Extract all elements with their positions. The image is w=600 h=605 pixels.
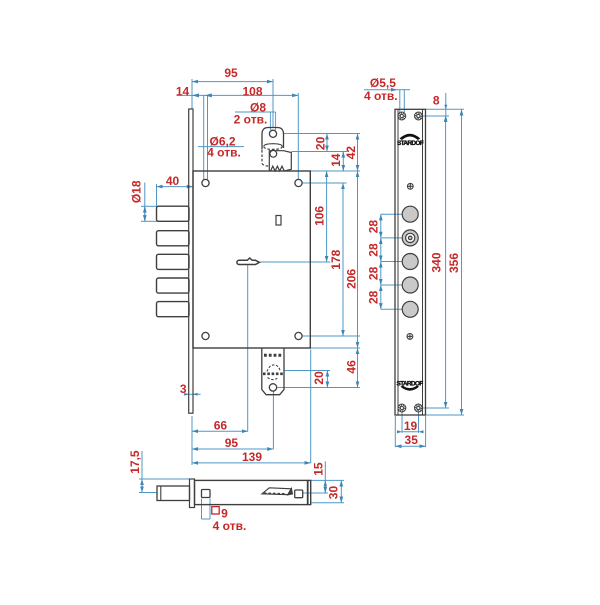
svg-text:15: 15: [311, 462, 325, 476]
svg-text:8: 8: [433, 94, 440, 108]
svg-text:95: 95: [224, 66, 238, 80]
svg-text:206: 206: [344, 269, 358, 289]
svg-text:35: 35: [405, 433, 419, 447]
svg-text:4 отв.: 4 отв.: [213, 519, 247, 533]
svg-text:Ø5,5: Ø5,5: [370, 76, 396, 90]
svg-text:Ø18: Ø18: [130, 180, 144, 203]
svg-text:139: 139: [242, 450, 262, 464]
svg-text:42: 42: [344, 146, 358, 160]
svg-text:95: 95: [225, 436, 239, 450]
svg-text:178: 178: [329, 249, 343, 269]
svg-text:4 отв.: 4 отв.: [364, 89, 398, 103]
svg-text:20: 20: [312, 371, 326, 385]
svg-text:30: 30: [327, 486, 341, 500]
svg-text:STARDOF: STARDOF: [397, 140, 424, 147]
svg-text:28: 28: [367, 243, 381, 257]
svg-text:19: 19: [404, 419, 418, 433]
svg-text:108: 108: [242, 84, 262, 98]
svg-text:14: 14: [329, 153, 343, 167]
svg-text:66: 66: [214, 419, 228, 433]
svg-text:STARDOF: STARDOF: [396, 381, 423, 388]
svg-text:46: 46: [344, 360, 358, 374]
svg-text:20: 20: [314, 136, 328, 150]
svg-text:28: 28: [367, 290, 381, 304]
svg-text:2 отв.: 2 отв.: [234, 112, 268, 126]
svg-text:17,5: 17,5: [128, 450, 142, 474]
svg-text:356: 356: [447, 253, 461, 273]
svg-text:14: 14: [176, 84, 190, 98]
svg-text:28: 28: [367, 220, 381, 234]
svg-text:40: 40: [166, 174, 180, 188]
svg-text:3: 3: [180, 382, 187, 396]
svg-text:340: 340: [430, 252, 444, 272]
svg-text:4 отв.: 4 отв.: [207, 146, 241, 160]
svg-text:106: 106: [313, 206, 327, 226]
svg-text:28: 28: [367, 266, 381, 280]
